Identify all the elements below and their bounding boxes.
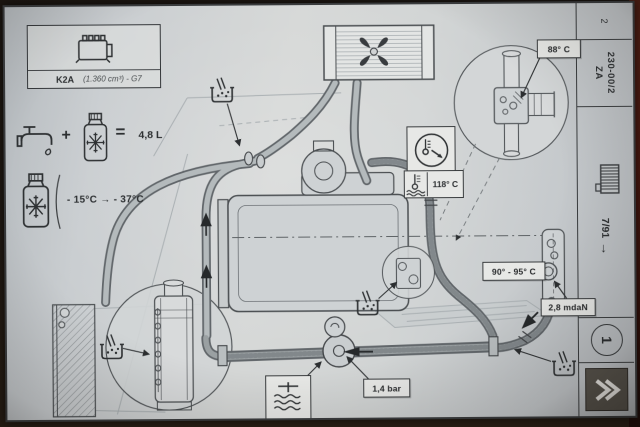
double-chevron-right-icon: [593, 375, 621, 403]
edition-cell: 7/91 →: [577, 107, 633, 318]
edition-date-block: 7/91 →: [598, 218, 613, 256]
section-number: 230-00/2: [604, 52, 616, 94]
radiator-grille-icon: [590, 163, 620, 197]
page-number-circle: 1: [590, 324, 622, 356]
sheet-number-cell: 2: [577, 3, 632, 40]
next-page-cell: [579, 363, 634, 416]
temperature-gauge-icon: [411, 130, 451, 170]
pressure-cap-box: [265, 375, 311, 419]
page-number: 1: [598, 336, 614, 344]
thermostat-temp-callout: 88° C: [537, 39, 581, 58]
antifreeze-jug-icon: [81, 112, 109, 162]
fan-switch-temp-callout: 90° - 95° C: [482, 261, 545, 280]
temp-gauge-box: [406, 126, 455, 174]
edition-date: 7/91: [600, 218, 612, 239]
warning-temp-value: 118° C: [428, 179, 463, 189]
antifreeze-jug-icon: [20, 173, 52, 229]
thermometer-coolant-icon: [405, 172, 428, 196]
engine-type-box: K2A (1.360 cm³) - G7: [27, 24, 161, 89]
antifreeze-protection-range: - 15°C → - 37°C: [67, 194, 144, 206]
sheet-number: 2: [599, 18, 609, 23]
tap-icon: [15, 123, 59, 161]
pressure-callout: 1,4 bar: [363, 378, 410, 397]
section-reference: ZA 230-00/2: [593, 52, 617, 94]
photo-of-manual-page: K2A (1.360 cm³) - G7 +: [0, 0, 640, 427]
range-bracket: [56, 175, 60, 229]
section-ref-cell: ZA 230-00/2: [577, 40, 632, 107]
page-number-cell: 1: [579, 318, 634, 363]
edition-arrow-icon: →: [598, 242, 613, 255]
bleed-beaker-icon: [552, 351, 576, 375]
plus-sign: +: [61, 127, 70, 145]
equals-sign: =: [115, 122, 125, 142]
filler-cap-icon: [270, 380, 306, 414]
warning-temp-box: 118° C: [404, 170, 464, 198]
thermostat-inset: [454, 45, 569, 160]
engine-code: K2A: [56, 74, 74, 84]
engine-spec: (1.360 cm³) - G7: [83, 74, 142, 83]
radiator-left: [53, 305, 96, 417]
manual-page: K2A (1.360 cm³) - G7 +: [3, 1, 638, 422]
coolant-capacity: 4,8 L: [138, 129, 162, 141]
heater-and-fan: [324, 25, 434, 80]
section-code: ZA: [593, 66, 605, 80]
torque-callout: 2,8 mdaN: [541, 298, 596, 316]
page-reference-sidebar: 2 ZA 230-00/2 7/91 →: [576, 3, 635, 416]
expansion-tank-inset: [105, 280, 232, 411]
next-page-tab: [585, 368, 628, 411]
bleed-beaker-icon: [210, 78, 234, 102]
engine-icon: [71, 30, 117, 64]
bleed-fitting-inset: [382, 246, 434, 298]
